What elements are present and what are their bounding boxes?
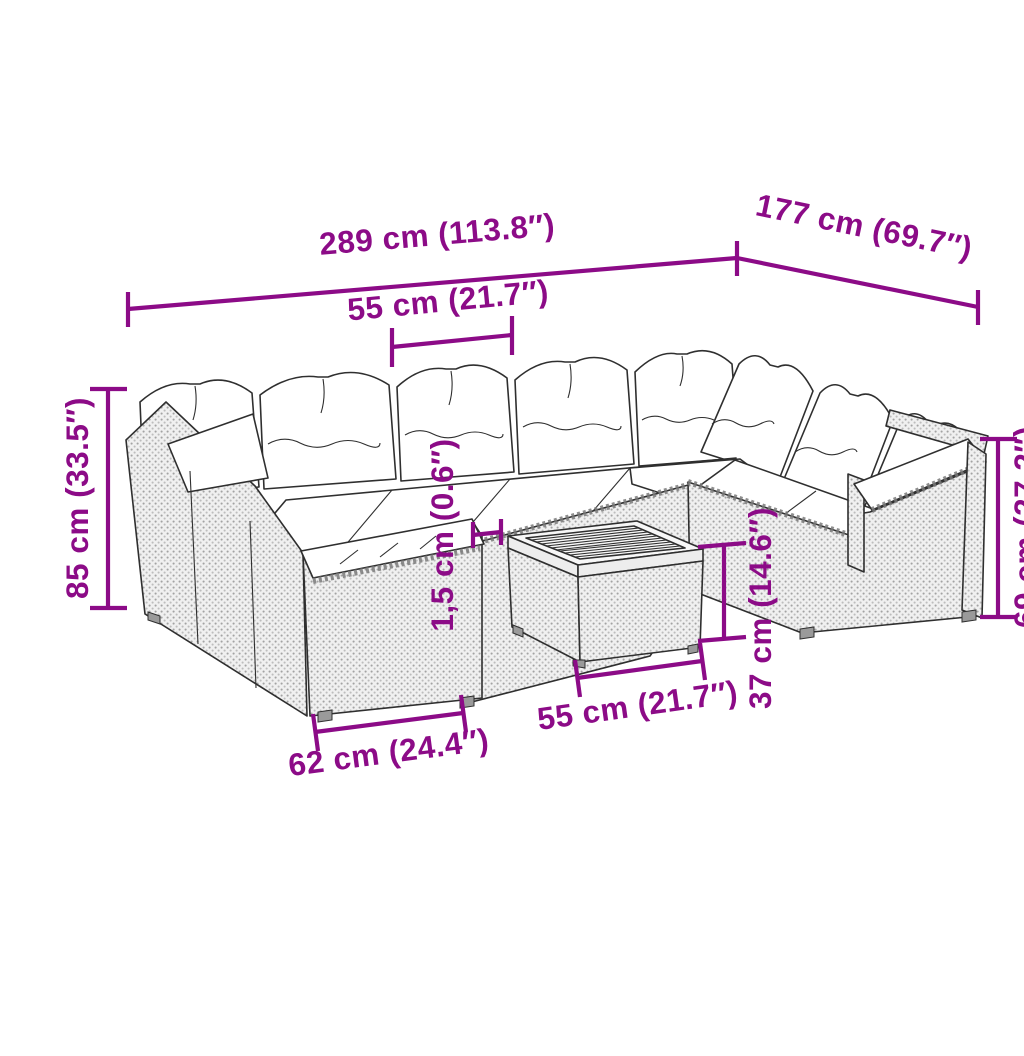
dim-line-overall-depth [737,258,978,325]
dim-label-table-height: 37 cm (14.6″) [742,507,778,709]
dim-line-seat-width [392,316,512,367]
dim-label-table-top-width: 55 cm (21.7″) [535,673,740,737]
dim-label-armrest-height: 69 cm (27.2″) [1007,426,1024,628]
dim-line-overall-height [90,389,127,608]
product-dimension-image: 289 cm (113.8″) 177 cm (69.7″) 55 cm (21… [40,16,1024,1040]
dim-label-overall-depth: 177 cm (69.7″) [753,186,976,265]
dim-label-cushion-thickness: 1,5 cm (0.6″) [424,438,460,631]
dim-label-overall-height: 85 cm (33.5″) [59,397,95,599]
dim-label-overall-width: 289 cm (113.8″) [318,206,556,262]
back-cushion [260,373,396,490]
garden-sofa-set [126,351,988,722]
back-cushion [515,358,634,475]
table-side-right [578,561,703,662]
